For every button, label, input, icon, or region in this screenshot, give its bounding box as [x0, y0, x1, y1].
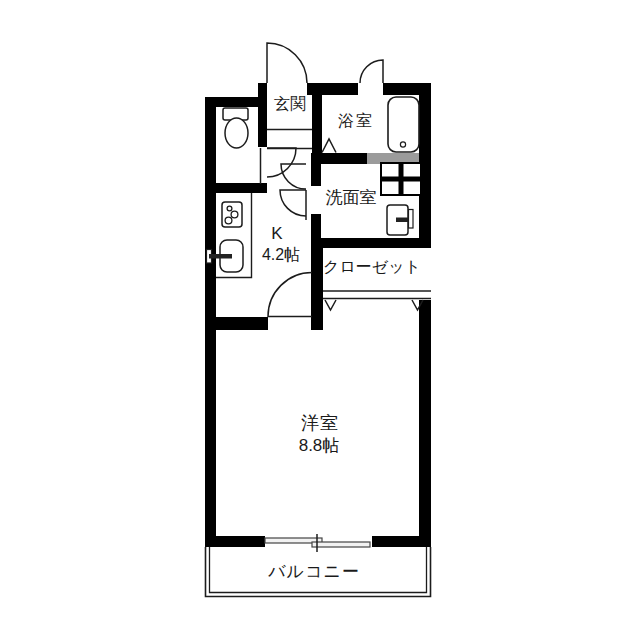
balcony-window [265, 534, 370, 552]
closet-top-wall [311, 238, 431, 248]
kitchen-room-door-arc [268, 273, 312, 317]
south-wall-right [372, 536, 431, 547]
entrance-door-arc [267, 43, 307, 83]
western-room-size-label: 8.8帖 [299, 436, 340, 455]
pan-cross-horizontal [381, 177, 421, 182]
washroom-wall-upper [311, 164, 321, 186]
floor-plan-canvas: 玄関 浴室 洗面室 クローゼット K 4.2帖 洋室 8.8帖 バルコニー [0, 0, 640, 640]
right-outer-wall-lower [419, 300, 431, 547]
stove-icon [222, 202, 242, 227]
balcony-label: バルコニー [267, 562, 360, 581]
south-wall-left [205, 536, 265, 547]
vanity-sink-icon [387, 205, 413, 235]
window-panel-right [312, 542, 370, 547]
stove-outline [222, 202, 242, 227]
vanity-faucet-valve [409, 210, 414, 229]
genkan-label: 玄関 [274, 95, 306, 112]
washroom-door-upper-arc [281, 164, 306, 189]
top-wall-b [307, 83, 358, 95]
washing-machine-pan-icon [381, 163, 421, 195]
washroom-door-lower-arc [280, 190, 306, 216]
bath-bottom-wall [311, 153, 367, 164]
toilet-icon [223, 108, 248, 148]
closet-left-wall [311, 248, 323, 330]
genkan-bath-wall [312, 95, 322, 153]
toilet-right-wall [258, 95, 267, 147]
closet-bifold-vmark-left [325, 300, 336, 310]
kitchen-size-label: 4.2帖 [262, 246, 300, 263]
floor-plan-drawing: 玄関 浴室 洗面室 クローゼット K 4.2帖 洋室 8.8帖 バルコニー [0, 0, 640, 640]
bath-folding-door-mark [322, 139, 336, 153]
washroom-wall-lower [311, 214, 321, 238]
closet-label: クローゼット [323, 258, 421, 275]
bath-label: 浴室 [338, 112, 374, 129]
top-wall-a [258, 83, 267, 95]
bathtub-icon [388, 97, 419, 152]
bathtub-drain [400, 142, 405, 147]
kitchen-bottom-wall [205, 317, 268, 330]
washroom-label: 洗面室 [326, 188, 377, 207]
sink-faucet-bar [209, 254, 232, 259]
toilet-bottom-wall [205, 183, 267, 193]
western-room-label: 洋室 [301, 413, 339, 433]
kitchen-label: K [271, 224, 283, 243]
toilet-bowl [225, 118, 248, 148]
toilet-door-arc [267, 148, 296, 177]
bath-exterior-door-arc [360, 60, 383, 83]
